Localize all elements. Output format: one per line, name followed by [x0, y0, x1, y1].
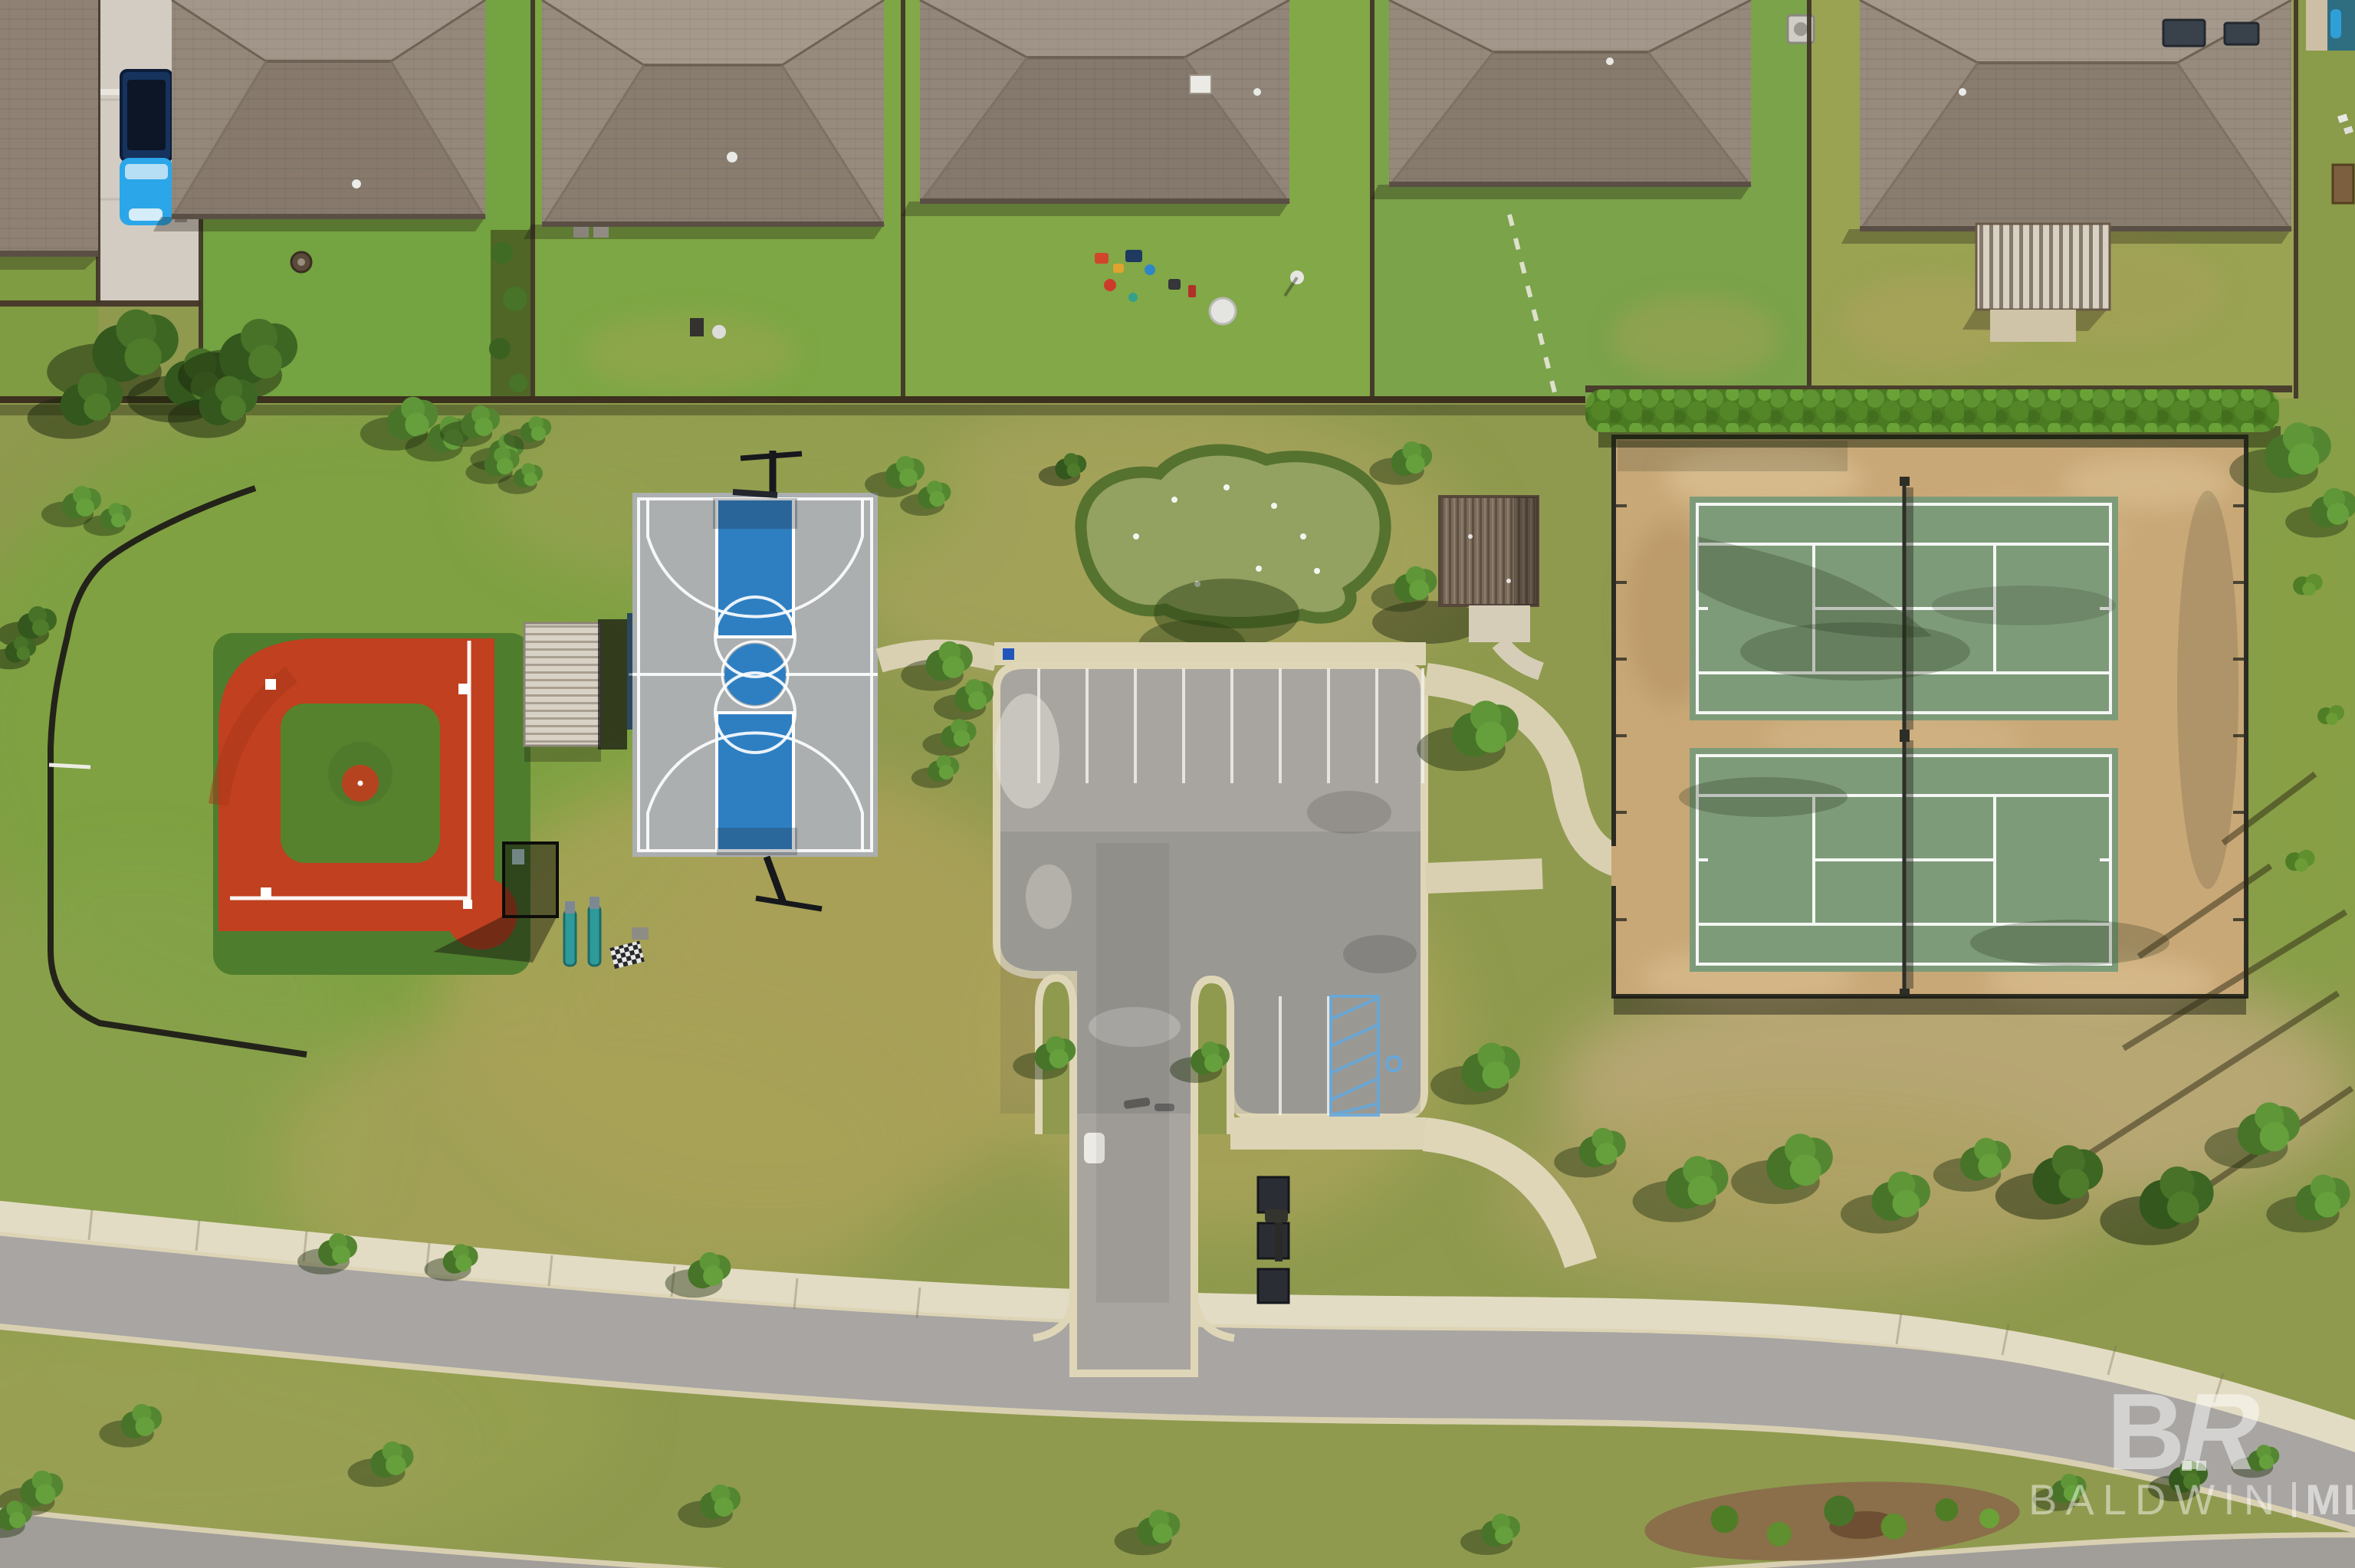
park-benches	[1258, 1177, 1289, 1303]
house-4	[1371, 0, 1751, 199]
tennis-courts	[1611, 437, 2246, 1015]
canopy-shadow	[598, 619, 627, 750]
tennis-gate	[1611, 846, 1619, 886]
aerial-scene: B R BALDWIN MLS	[0, 0, 2355, 1568]
house-2	[524, 0, 884, 239]
fence-shadow	[1614, 996, 2246, 1015]
house-1	[153, 0, 485, 231]
lot-sign	[1003, 648, 1014, 660]
lot-bottom-sidewalk	[1230, 1117, 1426, 1150]
hedge-row	[1585, 389, 2281, 448]
aerial-photo-canvas	[0, 0, 2355, 1568]
house-3	[902, 0, 1289, 216]
pool-corner	[2306, 0, 2355, 51]
path-stub	[1426, 874, 1542, 878]
pergola	[1962, 224, 2110, 342]
house-far-left	[0, 0, 98, 270]
